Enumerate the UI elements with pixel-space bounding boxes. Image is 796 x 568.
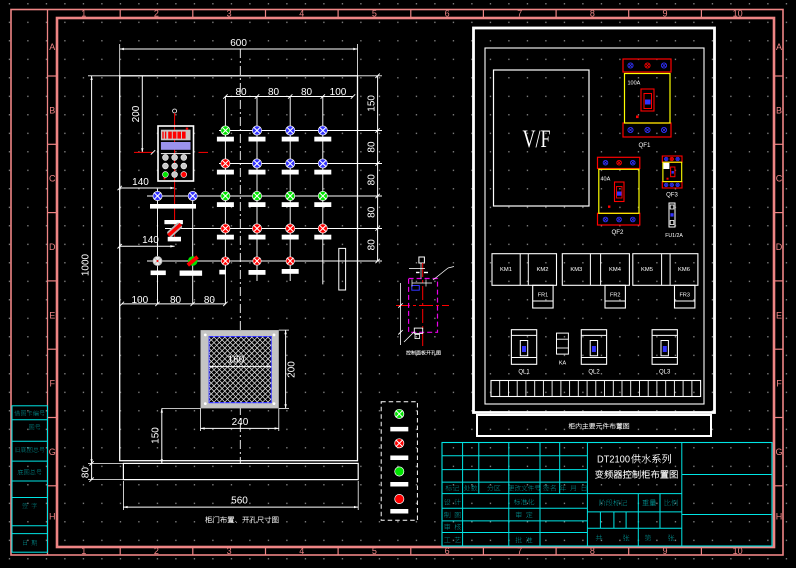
svg-text:KM4: KM4 — [609, 267, 622, 273]
svg-text:G: G — [775, 447, 782, 457]
svg-text:100: 100 — [131, 295, 148, 306]
svg-text:80: 80 — [367, 206, 378, 218]
svg-text:QL1: QL1 — [518, 370, 530, 376]
svg-text:80: 80 — [268, 87, 280, 98]
svg-text:KA: KA — [559, 361, 567, 367]
svg-text:80: 80 — [235, 87, 247, 98]
svg-text:A: A — [49, 42, 55, 52]
svg-text:80: 80 — [204, 295, 216, 306]
svg-text:40A: 40A — [601, 177, 611, 183]
svg-text:2: 2 — [154, 9, 159, 19]
svg-text:100: 100 — [330, 87, 347, 98]
svg-text:560: 560 — [231, 495, 248, 506]
svg-text:D: D — [776, 242, 783, 252]
svg-text:KM3: KM3 — [570, 267, 582, 273]
svg-text:80: 80 — [81, 467, 92, 479]
svg-text:QF3: QF3 — [666, 193, 678, 199]
svg-text:240: 240 — [232, 417, 249, 428]
svg-text:KM1: KM1 — [500, 267, 512, 273]
svg-text:4: 4 — [299, 9, 304, 19]
svg-text:B: B — [49, 105, 55, 115]
svg-text:C: C — [49, 174, 56, 184]
svg-text:QL3: QL3 — [659, 370, 671, 376]
svg-text:1: 1 — [81, 9, 86, 19]
svg-text:F: F — [776, 379, 782, 389]
svg-text:QL2: QL2 — [588, 370, 600, 376]
svg-text:H: H — [49, 512, 56, 522]
svg-text:3: 3 — [227, 546, 232, 556]
svg-text:100A: 100A — [628, 81, 641, 87]
svg-text:10: 10 — [733, 9, 743, 19]
svg-text:FR2: FR2 — [610, 293, 620, 299]
svg-text:G: G — [49, 447, 56, 457]
svg-text:FR1: FR1 — [538, 293, 548, 299]
svg-text:7: 7 — [517, 9, 522, 19]
svg-text:80: 80 — [170, 295, 182, 306]
svg-text:A: A — [776, 42, 782, 52]
svg-text:80: 80 — [367, 239, 378, 251]
svg-text:200: 200 — [287, 361, 298, 378]
svg-text:FU1/2A: FU1/2A — [665, 233, 683, 239]
svg-text:C: C — [776, 174, 783, 184]
svg-text:6: 6 — [445, 9, 450, 19]
svg-text:1000: 1000 — [81, 253, 92, 276]
svg-text:6: 6 — [445, 546, 450, 556]
svg-text:9: 9 — [662, 546, 667, 556]
svg-text:E: E — [49, 310, 55, 320]
svg-text:1: 1 — [81, 546, 86, 556]
svg-text:KM5: KM5 — [641, 267, 653, 273]
svg-text:KM2: KM2 — [537, 267, 549, 273]
svg-text:10: 10 — [733, 546, 743, 556]
svg-text:200: 200 — [131, 105, 142, 122]
svg-text:DT2100: DT2100 — [597, 455, 630, 466]
svg-text:160: 160 — [228, 354, 245, 365]
svg-text:140: 140 — [142, 235, 159, 246]
svg-text:H: H — [776, 512, 783, 522]
svg-text:5: 5 — [372, 546, 377, 556]
svg-text:B: B — [776, 105, 782, 115]
svg-text:2: 2 — [154, 546, 159, 556]
svg-text:V/F: V/F — [523, 126, 551, 153]
svg-text:80: 80 — [301, 87, 313, 98]
svg-text:FR3: FR3 — [680, 293, 690, 299]
svg-text:5: 5 — [372, 9, 377, 19]
svg-text:QF1: QF1 — [638, 142, 651, 149]
svg-text:80: 80 — [367, 174, 378, 186]
svg-text:D: D — [49, 242, 56, 252]
svg-text:KM6: KM6 — [678, 267, 690, 273]
svg-text:80: 80 — [367, 141, 378, 153]
svg-text:8: 8 — [590, 546, 595, 556]
svg-text:600: 600 — [230, 38, 247, 49]
svg-text:F: F — [49, 379, 55, 389]
svg-text:4: 4 — [299, 546, 304, 556]
svg-text:E: E — [776, 310, 782, 320]
svg-text:3: 3 — [227, 9, 232, 19]
svg-text:9: 9 — [662, 9, 667, 19]
svg-text:150: 150 — [150, 427, 161, 444]
svg-text:QF2: QF2 — [611, 229, 624, 236]
svg-text:7: 7 — [517, 546, 522, 556]
svg-text:150: 150 — [367, 95, 378, 112]
svg-text:140: 140 — [132, 177, 149, 188]
svg-text:8: 8 — [590, 9, 595, 19]
